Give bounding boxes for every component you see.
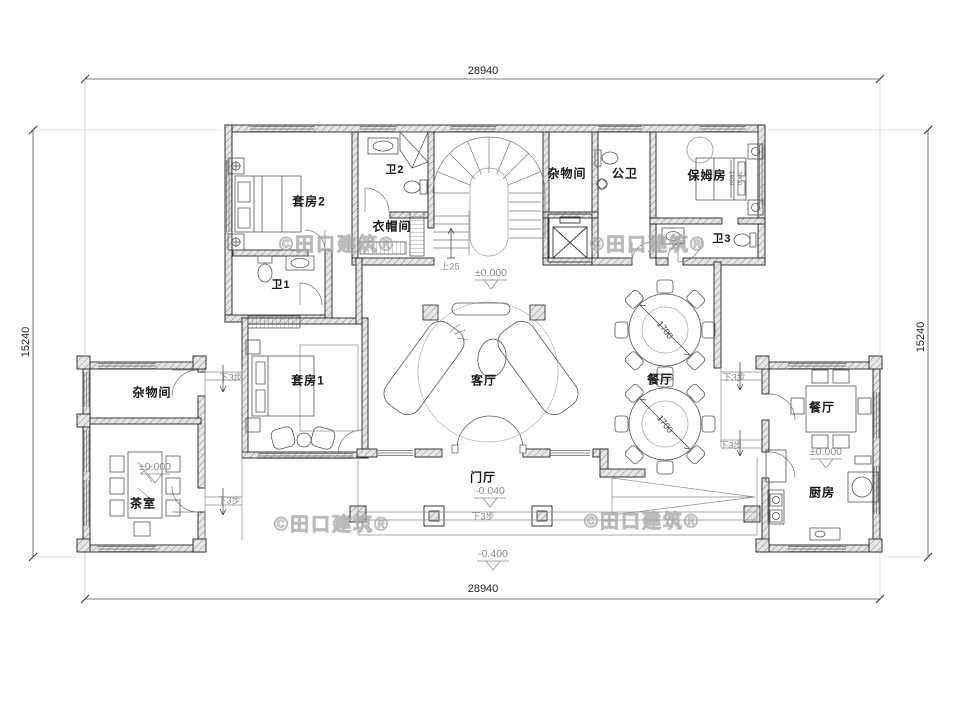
room-label-nanny-room: 保姆房 — [687, 167, 726, 184]
watermark-top-left: ©田口建筑® — [279, 230, 395, 257]
note-steps-porch: 下3步 — [471, 510, 494, 523]
dim-right: 15240 — [915, 322, 927, 353]
dimension-lines — [29, 75, 932, 603]
level-ground-main: ±0.000 — [475, 267, 507, 279]
dim-bottom: 28940 — [468, 583, 499, 595]
watermark-bottom-right: ©田口建筑® — [584, 507, 700, 534]
watermark-top-right: ©田口建筑® — [590, 230, 706, 257]
elevator — [548, 214, 592, 262]
plan-drawing — [0, 0, 961, 722]
note-steps-left-bottom: 下3步 — [217, 494, 240, 507]
room-label-kitchen: 厨房 — [809, 484, 835, 501]
note-steps-left-top: 下3步 — [219, 371, 242, 384]
room-label-storage-left: 杂物间 — [132, 384, 171, 401]
room-label-bath2: 卫2 — [385, 161, 404, 177]
dim-left: 15240 — [20, 327, 32, 358]
level-foyer: -0.040 — [475, 485, 505, 497]
room-label-storage-top: 杂物间 — [547, 165, 586, 182]
room-label-dining-main: 餐厅 — [647, 371, 673, 388]
room-label-foyer: 门厅 — [470, 469, 496, 486]
floor-plan-canvas: 28940 28940 15240 15240 套房2 卫2 衣帽间 杂物间 公… — [0, 0, 961, 722]
room-label-bath3: 卫3 — [712, 230, 731, 246]
level-ground-kitchen: ±0.000 — [810, 446, 842, 458]
dim-top: 28940 — [468, 65, 499, 77]
room-label-suite1: 套房1 — [291, 372, 325, 389]
room-label-tea-room: 茶室 — [130, 495, 156, 512]
level-ground-tea: ±0.000 — [139, 461, 171, 473]
note-steps-right-bottom: 下3步 — [719, 439, 742, 452]
suite1-bed — [246, 340, 358, 451]
room-label-bath1: 卫1 — [271, 276, 290, 292]
level-terrace: -0.400 — [478, 548, 508, 560]
bed-dim-length: 2000 — [736, 171, 743, 185]
room-label-living-room: 客厅 — [471, 372, 497, 389]
spiral-staircase — [433, 137, 545, 258]
watermark-bottom-left: ©田口建筑® — [274, 510, 390, 537]
bed-dim-width: 1800 — [728, 171, 735, 185]
note-steps-right-top: 下3步 — [722, 371, 745, 384]
room-label-public-bath: 公卫 — [612, 165, 638, 182]
note-stair-up: 上25 — [440, 260, 459, 273]
room-label-suite2: 套房2 — [292, 193, 326, 210]
room-label-dining-right: 餐厅 — [809, 399, 835, 416]
